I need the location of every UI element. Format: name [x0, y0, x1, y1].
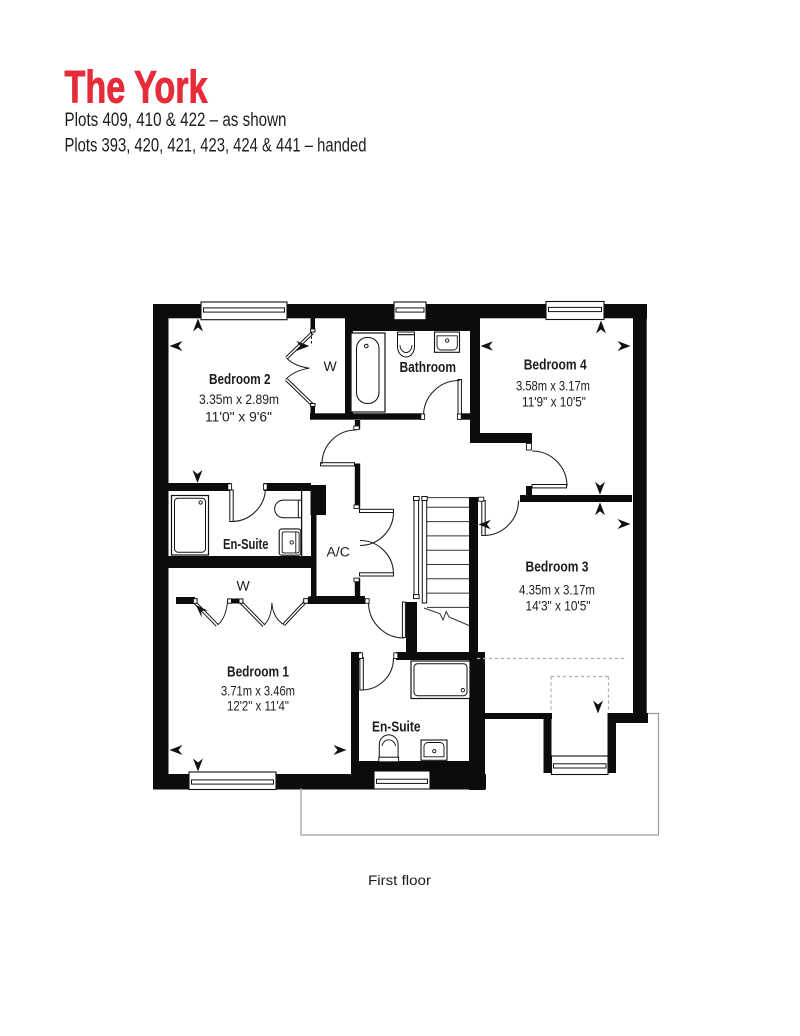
svg-text:W: W: [324, 358, 338, 374]
svg-text:Bedroom 2: Bedroom 2: [209, 372, 271, 388]
svg-text:4.35m x 3.17m: 4.35m x 3.17m: [519, 583, 595, 598]
svg-text:3.35m x 2.89m: 3.35m x 2.89m: [199, 392, 279, 407]
svg-text:Bathroom: Bathroom: [400, 360, 457, 376]
svg-text:A/C: A/C: [327, 544, 350, 560]
svg-text:Bedroom 4: Bedroom 4: [524, 358, 588, 374]
svg-text:The York: The York: [65, 62, 209, 113]
svg-text:11'9" x 10'5": 11'9" x 10'5": [522, 395, 586, 410]
svg-text:En-Suite: En-Suite: [372, 720, 421, 736]
svg-text:Plots 409, 410 & 422 – as show: Plots 409, 410 & 422 – as shown: [65, 110, 287, 131]
svg-text:Plots 393, 420, 421, 423, 424: Plots 393, 420, 421, 423, 424 & 441 – ha…: [65, 136, 367, 157]
svg-text:3.71m x 3.46m: 3.71m x 3.46m: [221, 684, 295, 699]
svg-text:14'3" x 10'5": 14'3" x 10'5": [526, 599, 591, 614]
svg-text:3.58m x 3.17m: 3.58m x 3.17m: [516, 379, 590, 394]
svg-text:First floor: First floor: [368, 873, 431, 889]
svg-text:12'2" x 11'4": 12'2" x 11'4": [227, 699, 289, 714]
svg-text:W: W: [237, 578, 251, 594]
svg-text:En-Suite: En-Suite: [223, 537, 269, 553]
svg-text:Bedroom 3: Bedroom 3: [526, 560, 589, 576]
svg-text:11'0" x 9'6": 11'0" x 9'6": [205, 410, 272, 425]
svg-text:Bedroom 1: Bedroom 1: [227, 665, 289, 681]
